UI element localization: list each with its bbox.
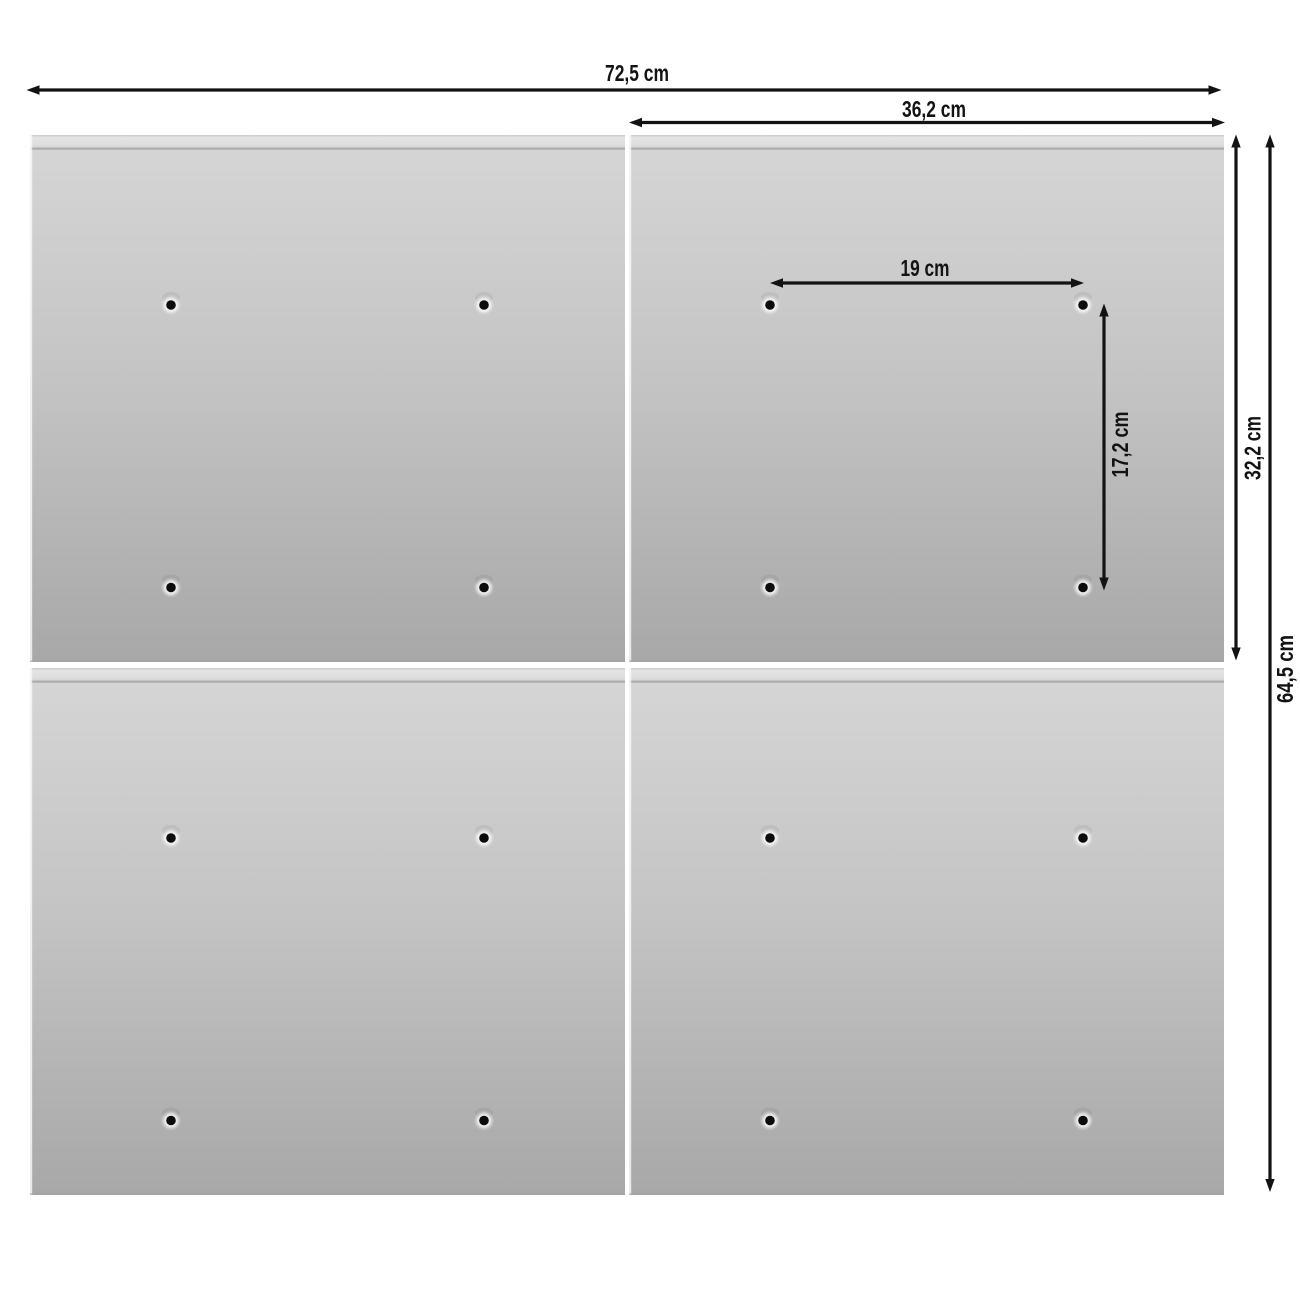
svg-text:36,2 cm: 36,2 cm <box>902 96 966 122</box>
svg-text:17,2 cm: 17,2 cm <box>1107 412 1133 478</box>
svg-text:32,2 cm: 32,2 cm <box>1240 416 1266 480</box>
svg-text:64,5 cm: 64,5 cm <box>1272 635 1298 703</box>
svg-text:19 cm: 19 cm <box>901 255 950 281</box>
svg-text:72,5 cm: 72,5 cm <box>605 60 669 86</box>
